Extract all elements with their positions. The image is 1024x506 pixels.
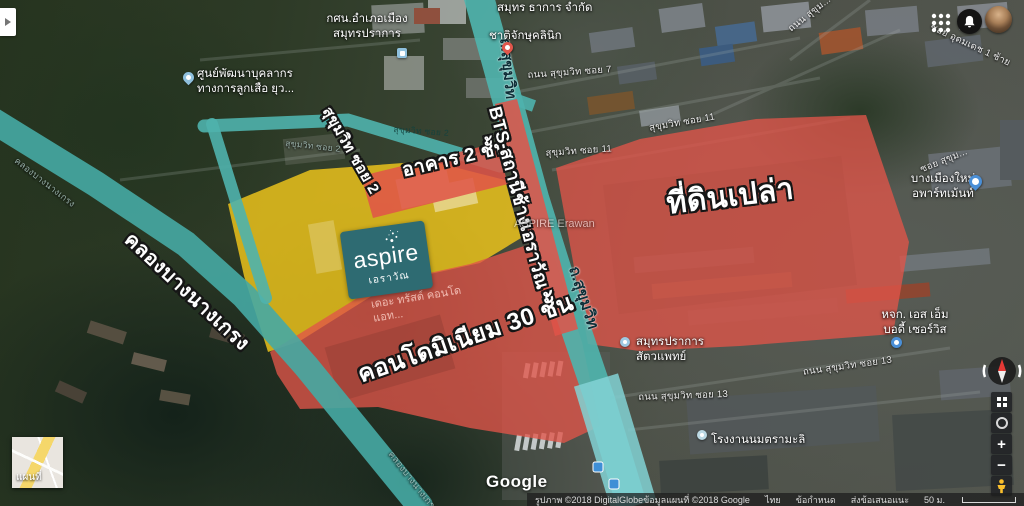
body-service-pin-icon[interactable] [891,337,902,348]
poi-label-nfe-office[interactable]: กศน.อำเภอเมือง สมุทรปราการ [305,12,429,42]
attribution-bar: รูปภาพ ©2018 DigitalGlobeข้อมูลแผนที่ ©2… [527,493,1024,506]
expand-side-panel-button[interactable] [0,8,16,36]
imagery-credit: รูปภาพ ©2018 DigitalGlobeข้อมูลแผนที่ ©2… [535,493,750,506]
street-label-soi13: ถนน สุขุมวิท ซอย 13 [638,387,728,405]
bell-icon [963,15,976,29]
tilt-grid-icon [997,397,1007,407]
aspire-erawan-logo: aspire เอราวัณ [340,220,434,299]
my-location-button[interactable] [991,413,1012,433]
location-target-icon [996,417,1008,429]
poi-label-vet[interactable]: สมุทรปราการ สัตวแพทย์ [636,335,704,365]
account-avatar[interactable] [985,6,1012,33]
country-label: ไทย [765,493,781,506]
bts-marker-icon[interactable] [593,462,603,472]
map-viewport[interactable]: อาคาร 2 ชั้น BTS สถานีช้างเอราวัณ ที่ดิน… [0,0,1024,506]
notifications-button[interactable] [957,9,982,34]
aspire-brand-text: aspire [352,240,420,272]
school-poi-icon[interactable] [397,48,407,58]
scale-bar[interactable] [962,497,1016,503]
pegman-icon [996,479,1007,494]
bts-marker-icon[interactable] [609,479,619,489]
apps-grid-icon [931,13,951,33]
poi-label-milk-factory[interactable]: โรงงานนมตรามะลิ [711,433,805,448]
minimap-toggle[interactable]: แผนที่ [12,437,63,488]
minimap-label: แผนที่ [16,470,42,485]
feedback-link[interactable]: ส่งข้อเสนอแนะ [851,493,909,506]
milk-factory-pin-icon[interactable] [697,430,707,440]
zoom-in-button[interactable]: + [991,434,1012,454]
poi-label-aspire-erawan[interactable]: ASPIRE Erawan [514,217,595,231]
google-apps-grid-button[interactable] [931,13,951,33]
aspire-subtitle-text: เอราวัณ [368,268,411,289]
terms-link[interactable]: ข้อกำหนด [796,493,836,506]
scale-label: 50 ม. [924,493,945,506]
vet-pin-icon[interactable] [620,337,630,347]
chevron-right-icon [5,18,11,26]
compass-icon [982,353,1022,389]
google-logo[interactable]: Google [486,472,548,492]
poi-label-body-service[interactable]: หจก. เอส เอ็ม บอดี้ เซอร์วิส [878,308,952,338]
zoom-out-button[interactable]: − [991,455,1012,475]
poi-label-scout-center[interactable]: ศูนย์พัฒนาบุคลากร ทางการลูกเสือ ยุว... [197,67,294,97]
compass-control[interactable] [982,353,1022,389]
poi-label-company[interactable]: สมุทร ธาการ จำกัด [497,1,592,16]
poi-label-eye-clinic[interactable]: ชาติจักษุคลินิก [489,29,562,44]
tilt-view-button[interactable] [991,392,1012,412]
